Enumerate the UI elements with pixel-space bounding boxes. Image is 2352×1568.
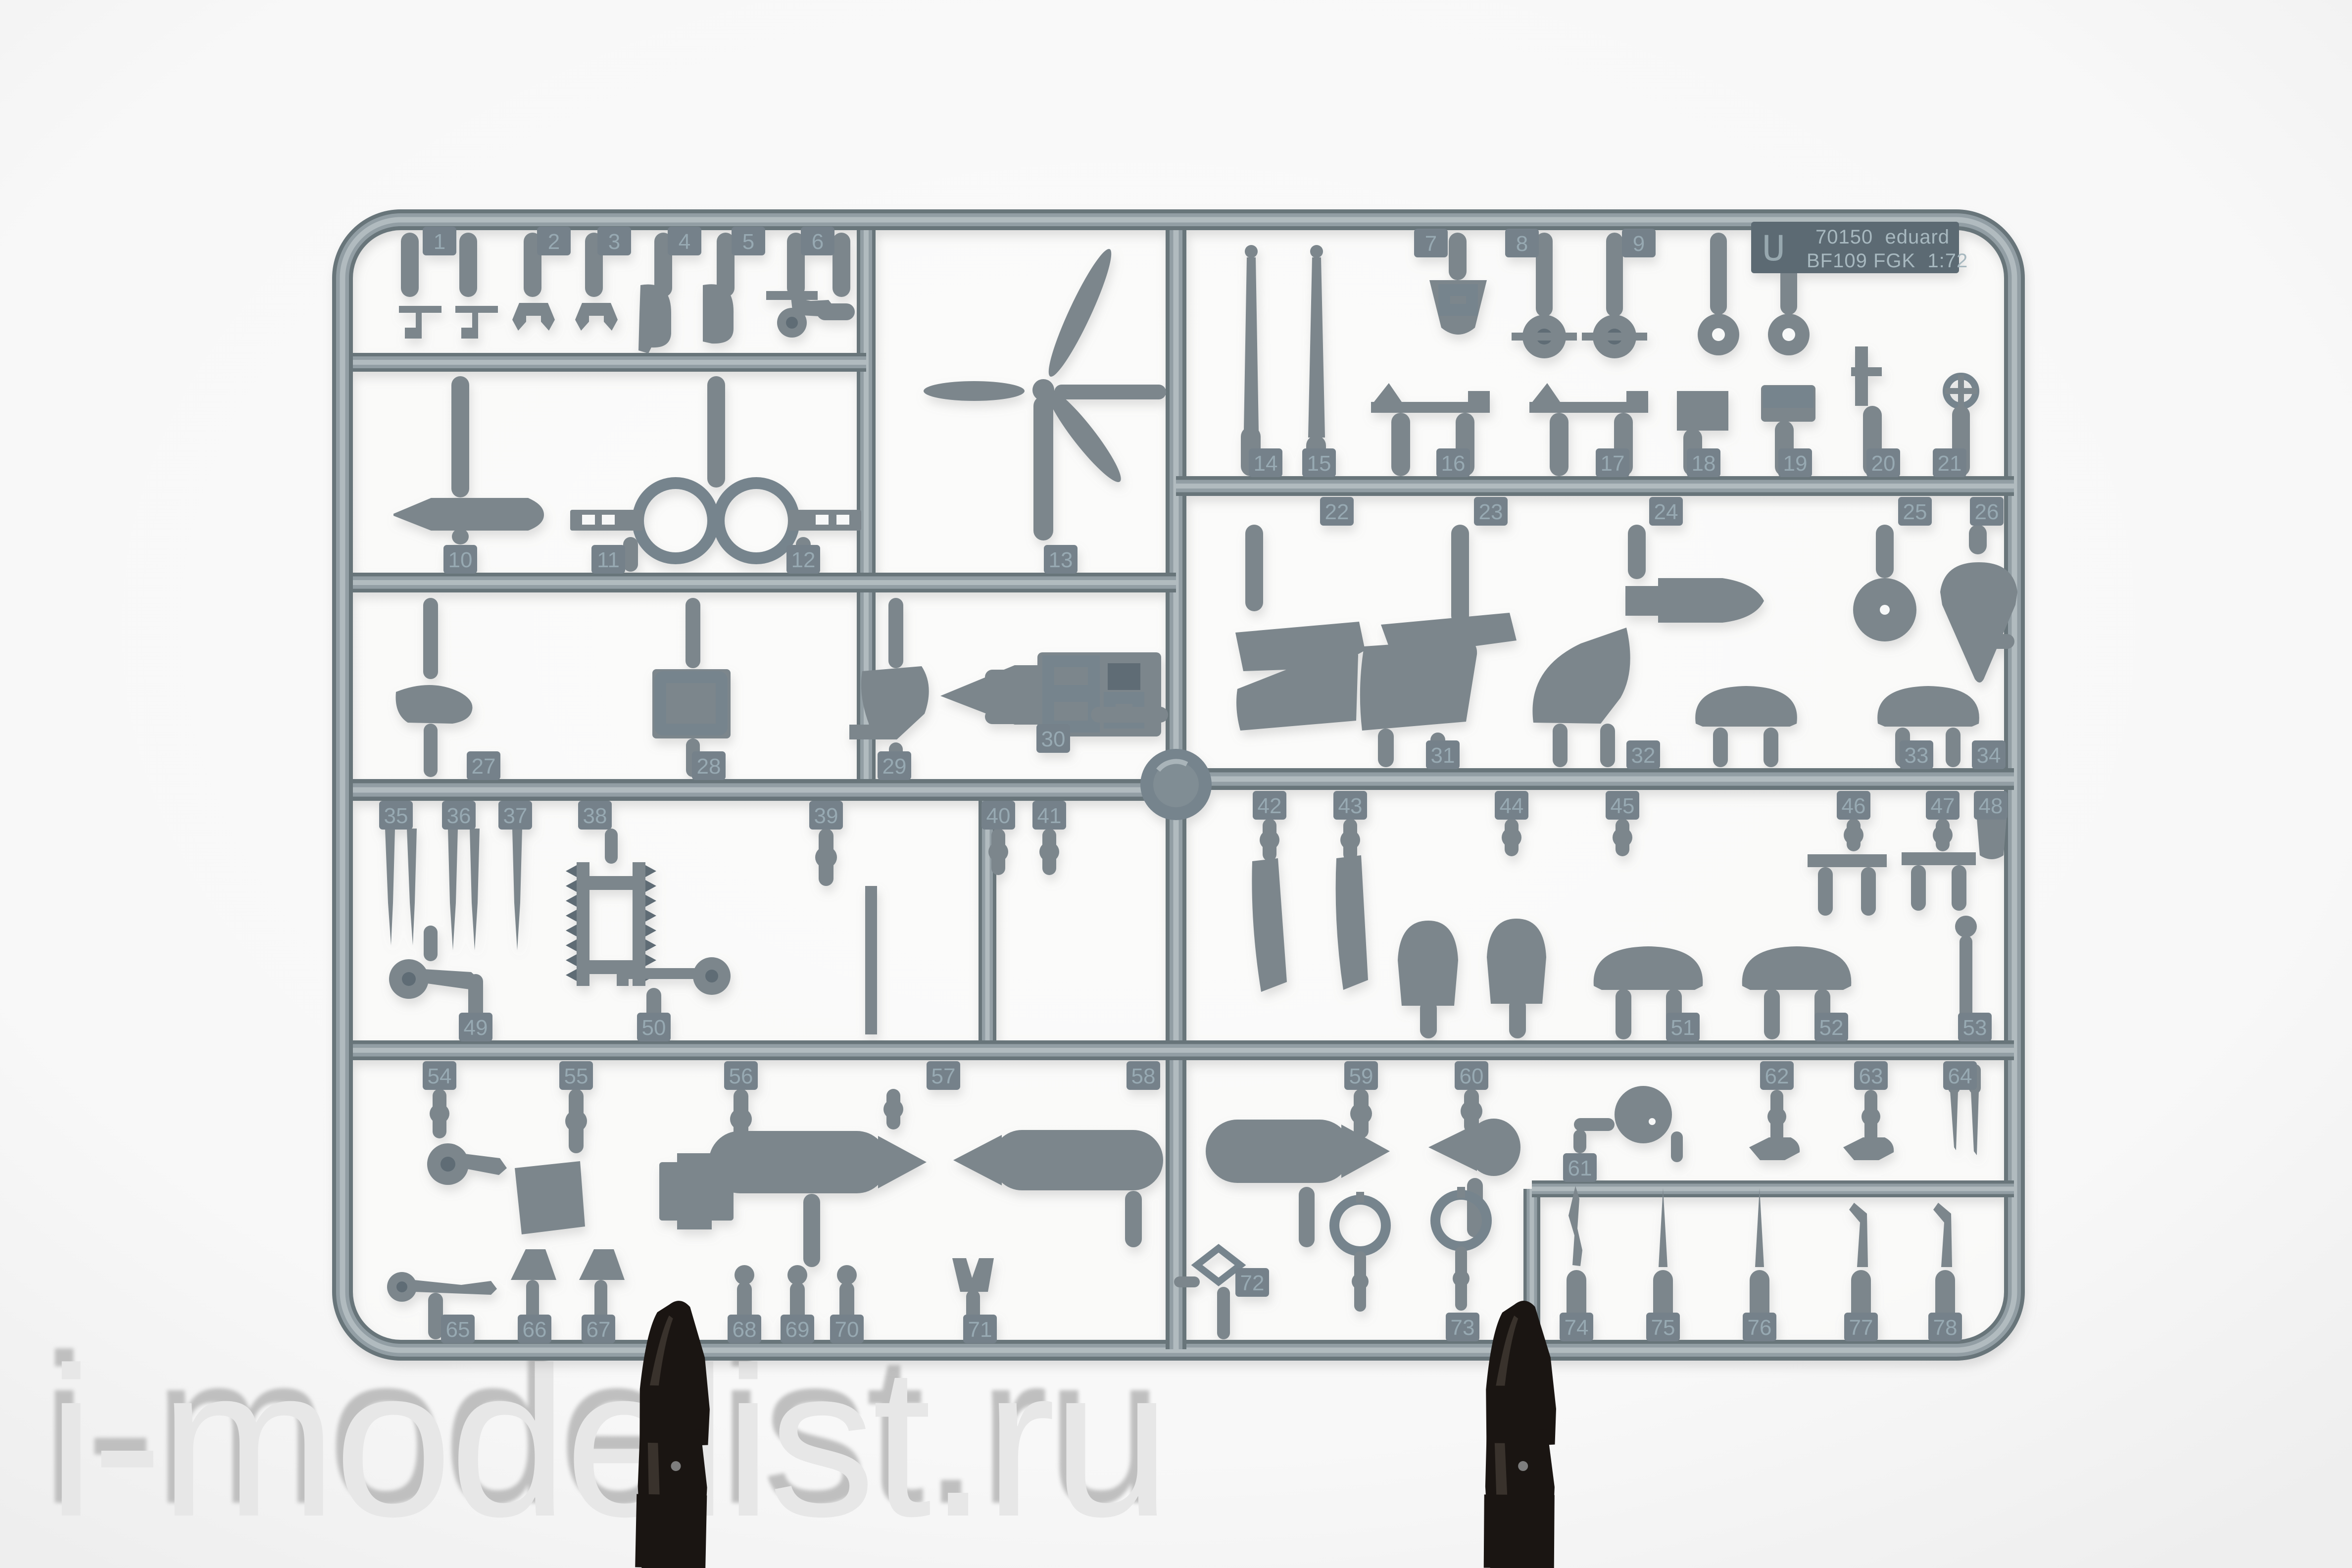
svg-text:9: 9 <box>1633 232 1645 256</box>
svg-text:20: 20 <box>1871 451 1896 476</box>
svg-text:BF109 FGK 1:72: BF109 FGK 1:72 <box>1807 250 1968 272</box>
svg-text:55: 55 <box>564 1064 588 1088</box>
svg-text:25: 25 <box>1903 500 1927 524</box>
svg-text:58: 58 <box>1131 1064 1156 1088</box>
svg-text:17: 17 <box>1601 451 1625 476</box>
svg-text:10: 10 <box>448 548 473 572</box>
svg-text:23: 23 <box>1479 500 1503 524</box>
svg-text:49: 49 <box>464 1016 488 1040</box>
svg-text:U: U <box>1762 229 1785 272</box>
svg-text:47: 47 <box>1931 794 1955 818</box>
svg-text:76: 76 <box>1748 1316 1772 1340</box>
svg-text:73: 73 <box>1451 1316 1475 1340</box>
svg-text:66: 66 <box>523 1318 547 1342</box>
svg-text:26: 26 <box>1975 500 1999 524</box>
svg-text:41: 41 <box>1037 804 1062 828</box>
svg-text:67: 67 <box>587 1318 611 1342</box>
svg-text:34: 34 <box>1977 743 2001 768</box>
svg-text:8: 8 <box>1516 232 1528 256</box>
svg-text:14: 14 <box>1254 451 1278 476</box>
svg-text:78: 78 <box>1933 1316 1958 1340</box>
svg-text:43: 43 <box>1338 794 1363 818</box>
svg-text:75: 75 <box>1651 1316 1675 1340</box>
svg-text:3: 3 <box>608 230 620 254</box>
svg-text:40: 40 <box>986 804 1011 828</box>
svg-text:74: 74 <box>1565 1316 1589 1340</box>
svg-text:62: 62 <box>1765 1064 1789 1088</box>
svg-text:11: 11 <box>597 548 620 572</box>
svg-text:39: 39 <box>814 804 838 828</box>
svg-text:35: 35 <box>384 804 408 828</box>
svg-text:70: 70 <box>835 1318 859 1342</box>
svg-text:51: 51 <box>1671 1016 1695 1040</box>
svg-text:71: 71 <box>968 1318 992 1342</box>
svg-text:70150 eduard: 70150 eduard <box>1815 226 1950 248</box>
svg-text:56: 56 <box>729 1064 753 1088</box>
svg-text:5: 5 <box>742 230 754 254</box>
svg-text:50: 50 <box>642 1016 666 1040</box>
svg-text:15: 15 <box>1307 451 1331 476</box>
svg-text:21: 21 <box>1938 451 1962 476</box>
svg-text:38: 38 <box>583 804 607 828</box>
svg-text:45: 45 <box>1611 794 1635 818</box>
svg-text:54: 54 <box>428 1064 452 1088</box>
svg-text:22: 22 <box>1325 500 1349 524</box>
svg-text:42: 42 <box>1258 794 1282 818</box>
svg-text:6: 6 <box>812 230 824 254</box>
svg-text:1: 1 <box>434 230 445 254</box>
svg-text:13: 13 <box>1049 548 1073 572</box>
svg-text:4: 4 <box>679 230 690 254</box>
svg-text:48: 48 <box>1979 794 2003 818</box>
svg-text:19: 19 <box>1783 451 1808 476</box>
svg-text:65: 65 <box>446 1318 470 1342</box>
svg-text:24: 24 <box>1654 500 1678 524</box>
svg-text:46: 46 <box>1842 794 1866 818</box>
svg-text:53: 53 <box>1963 1016 1987 1040</box>
svg-text:31: 31 <box>1431 743 1455 768</box>
svg-text:2: 2 <box>548 230 560 254</box>
svg-text:52: 52 <box>1819 1016 1844 1040</box>
svg-text:57: 57 <box>931 1064 956 1088</box>
svg-text:64: 64 <box>1948 1064 1972 1088</box>
svg-text:18: 18 <box>1692 451 1716 476</box>
svg-text:27: 27 <box>472 754 496 779</box>
svg-text:16: 16 <box>1441 451 1466 476</box>
svg-text:33: 33 <box>1905 743 1929 768</box>
svg-text:77: 77 <box>1849 1316 1873 1340</box>
svg-text:37: 37 <box>503 804 528 828</box>
svg-text:69: 69 <box>785 1318 810 1342</box>
svg-text:68: 68 <box>733 1318 757 1342</box>
svg-text:59: 59 <box>1349 1064 1373 1088</box>
svg-text:36: 36 <box>447 804 471 828</box>
svg-text:30: 30 <box>1041 727 1066 751</box>
svg-text:44: 44 <box>1500 794 1524 818</box>
svg-text:12: 12 <box>791 548 816 572</box>
svg-text:28: 28 <box>697 754 721 779</box>
svg-text:72: 72 <box>1240 1271 1265 1295</box>
svg-text:60: 60 <box>1460 1064 1484 1088</box>
svg-text:29: 29 <box>882 754 907 779</box>
svg-text:7: 7 <box>1425 232 1437 256</box>
svg-text:61: 61 <box>1568 1156 1592 1180</box>
svg-text:63: 63 <box>1859 1064 1883 1088</box>
svg-text:32: 32 <box>1631 743 1656 768</box>
